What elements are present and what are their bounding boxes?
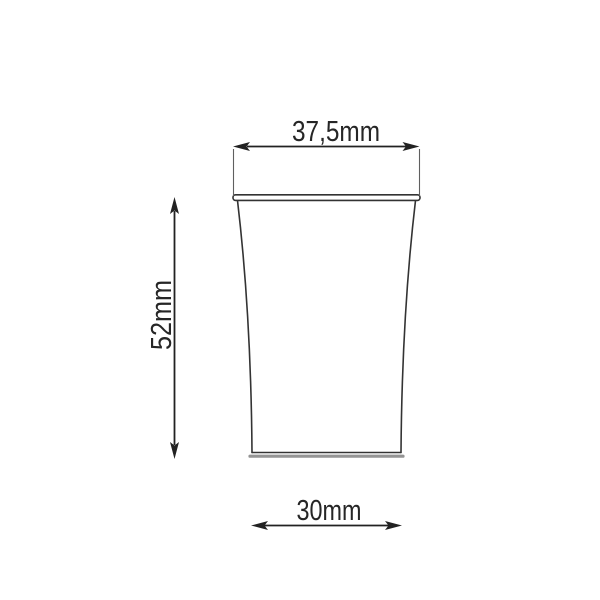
- top-width-dimension: 37,5mm: [233, 116, 420, 196]
- bottom-width-dimension-label: 30mm: [297, 495, 362, 527]
- height-dimension: 52mm: [146, 197, 179, 459]
- height-dimension-label: 52mm: [146, 280, 178, 350]
- cup-right-wall: [401, 201, 416, 453]
- cup-outline: [233, 195, 420, 456]
- technical-drawing-page: 37,5mm 52mm 30mm: [0, 0, 600, 600]
- technical-drawing-canvas: 37,5mm 52mm 30mm: [0, 0, 600, 600]
- cup-rim: [233, 195, 420, 201]
- bottom-width-dimension: 30mm: [251, 495, 402, 530]
- top-width-dimension-label: 37,5mm: [292, 116, 380, 148]
- cup-left-wall: [238, 201, 253, 453]
